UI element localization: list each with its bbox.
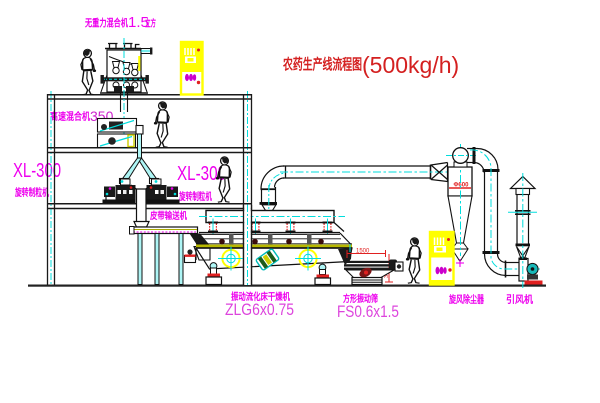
- svg-text:无重力混合机: 无重力混合机: [84, 17, 128, 30]
- svg-text:XL-300: XL-300: [13, 160, 61, 182]
- svg-text:1500: 1500: [356, 249, 370, 255]
- svg-text:(500kg/h): (500kg/h): [362, 52, 459, 78]
- svg-text:皮带输送机: 皮带输送机: [149, 210, 187, 222]
- svg-text:ZLG6x0.75: ZLG6x0.75: [225, 300, 294, 319]
- svg-text:旋转制粒机: 旋转制粒机: [178, 190, 212, 203]
- svg-text:旋转制粒机: 旋转制粒机: [14, 186, 49, 199]
- svg-text:FS0.6x1.5: FS0.6x1.5: [337, 302, 399, 321]
- svg-text:旋风除尘器: 旋风除尘器: [448, 293, 484, 306]
- svg-text:Φ600: Φ600: [454, 183, 470, 189]
- svg-text:高速混合机: 高速混合机: [50, 110, 90, 123]
- svg-text:农药生产线流程图: 农药生产线流程图: [282, 56, 362, 74]
- svg-text:引风机: 引风机: [506, 293, 533, 306]
- svg-text:立方: 立方: [145, 18, 156, 30]
